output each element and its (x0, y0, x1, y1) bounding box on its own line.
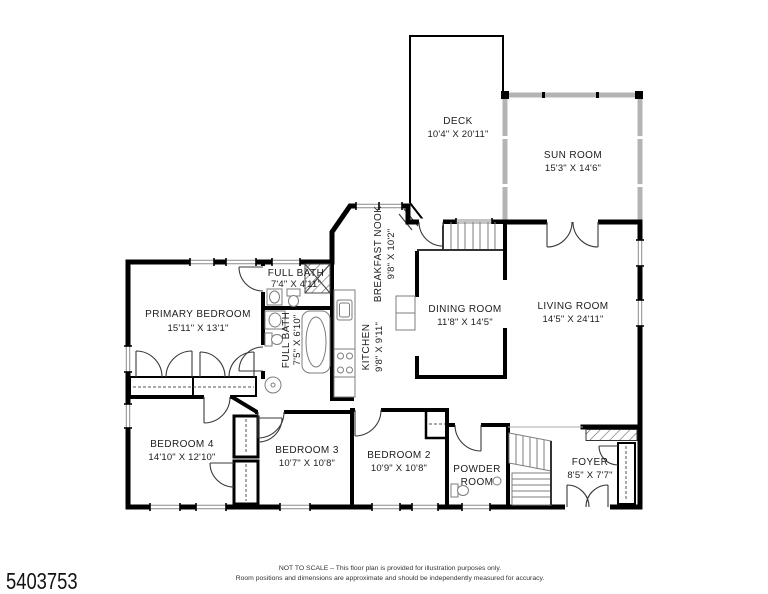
deck-dims: 10'4" X 20'11" (427, 129, 488, 140)
bedroom-2-dims: 10'9" X 10'8" (371, 463, 427, 474)
upper-stairs (417, 222, 503, 250)
foyer-dims: 8'5" X 7'7" (567, 470, 612, 481)
toilet-icon (265, 333, 283, 346)
living-room-dims: 14'5" X 24'11" (542, 314, 603, 325)
powder-room-label-2: ROOM (461, 477, 494, 488)
toilet-icon (287, 289, 300, 307)
full-bath-upper-dims: 7'4" X 4'11" (271, 279, 321, 290)
bedroom-4-dims: 14'10" X 12'10" (148, 452, 215, 463)
stove-icon (334, 349, 355, 377)
bedroom-3-label: BEDROOM 3 (275, 445, 339, 456)
full-bath-upper-label: FULL BATH (268, 268, 324, 279)
sun-room-label: SUN ROOM (544, 150, 602, 161)
disclaimer-line-2: Room positions and dimensions are approx… (236, 575, 545, 582)
bedroom-closet-column (234, 416, 258, 504)
full-bath-lower-label: FULL BATH (281, 312, 292, 368)
powder-room-label-1: POWDER (453, 464, 500, 475)
bedroom-4-label: BEDROOM 4 (150, 439, 214, 450)
basin-icon (265, 377, 281, 393)
kitchen-dims: 9'8" X 9'11" (374, 322, 385, 372)
listing-number: 5403753 (6, 569, 78, 594)
refrigerator-icon (396, 296, 415, 330)
sink-icon (267, 289, 282, 305)
living-room-label: LIVING ROOM (537, 301, 608, 312)
dining-room-label: DINING ROOM (428, 304, 501, 315)
bedroom-2-label: BEDROOM 2 (367, 450, 431, 461)
breakfast-nook-dims: 9'8" X 10'2" (386, 229, 397, 280)
floor-plan-image: DECK 10'4" X 20'11" SUN ROOM 15'3" X 14'… (0, 0, 768, 594)
foyer-label: FOYER (572, 457, 608, 468)
sun-room-dims: 15'3" X 14'6" (545, 163, 601, 174)
dining-room-dims: 11'8" X 14'5" (437, 317, 493, 328)
room-labels: DECK 10'4" X 20'11" SUN ROOM 15'3" X 14'… (145, 116, 612, 488)
bathtub-icon (302, 311, 330, 373)
bedroom-3-dims: 10'7" X 10'8" (279, 458, 335, 469)
powder-sink-icon (493, 477, 501, 485)
primary-closet (130, 377, 256, 396)
disclaimer-line-1: NOT TO SCALE – This floor plan is provid… (279, 565, 501, 572)
foyer-side-closet (618, 443, 635, 504)
primary-bedroom-label: PRIMARY BEDROOM (145, 309, 251, 320)
deck-label: DECK (443, 116, 472, 127)
breakfast-nook-label: BREAKFAST NOOK (373, 206, 384, 303)
kitchen-sink-icon (337, 300, 352, 320)
bedroom2-closet (426, 410, 447, 438)
kitchen-label: KITCHEN (361, 324, 372, 371)
coat-closet (586, 430, 637, 441)
footer: 5403753 NOT TO SCALE – This floor plan i… (6, 565, 544, 594)
floor-plan-page: DECK 10'4" X 20'11" SUN ROOM 15'3" X 14'… (0, 0, 768, 594)
primary-bedroom-dims: 15'11" X 13'1" (167, 323, 228, 334)
full-bath-lower-dims: 7'5" X 6'10" (292, 315, 303, 366)
